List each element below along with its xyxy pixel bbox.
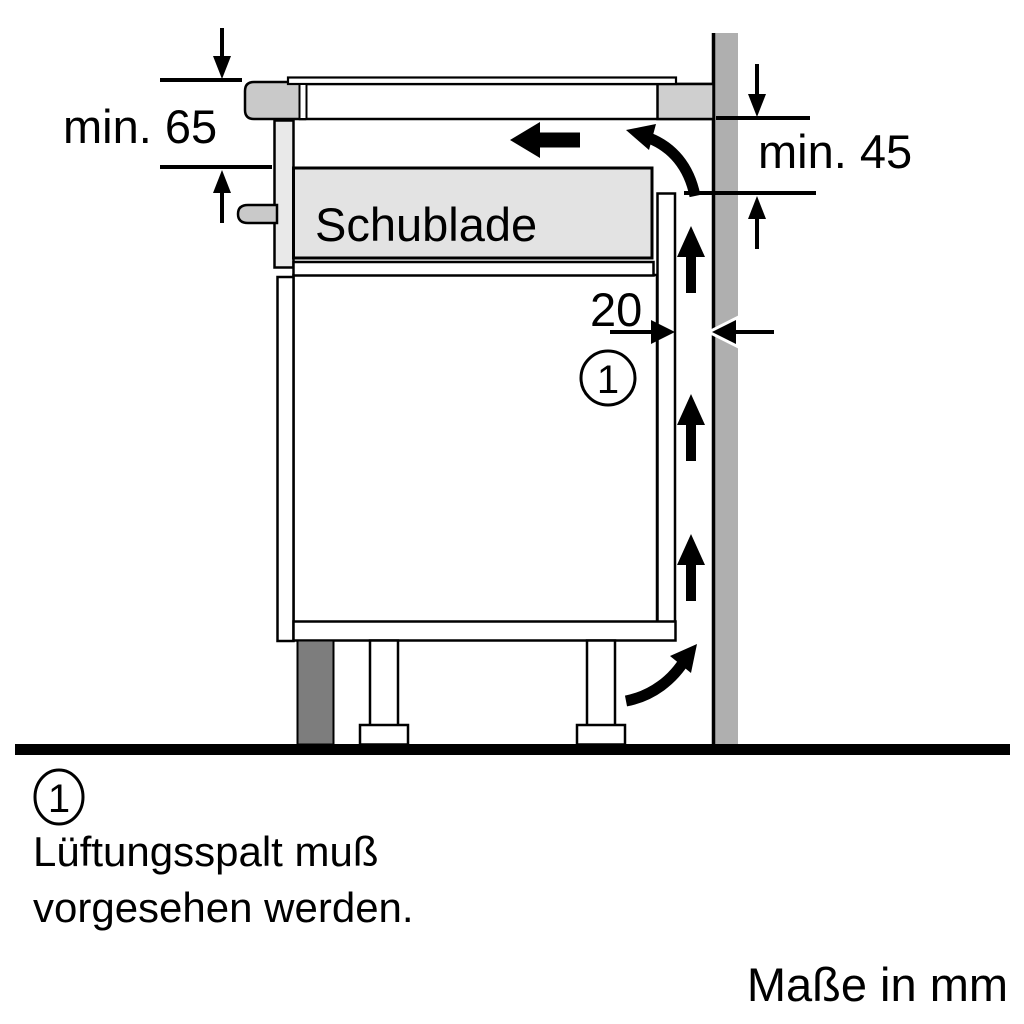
plinth <box>298 641 334 745</box>
cabinet-leg-front <box>360 641 408 745</box>
dimension-arrow-down-icon <box>213 28 231 79</box>
legend: 1 Lüftungsspalt muß vorgesehen werden. <box>33 770 414 931</box>
airflow-up-arrow-icon <box>677 394 705 461</box>
cabinet-rail <box>294 262 654 276</box>
worktop-end-block <box>658 84 714 119</box>
installation-diagram: Schublade min. 65 <box>0 0 1024 1024</box>
units-note: Maße in mm <box>747 958 1008 1011</box>
dimension-arrow-up-icon <box>213 170 231 223</box>
callout-number: 1 <box>597 358 619 402</box>
hob-glass-top <box>288 78 676 85</box>
wall-surface <box>713 33 738 744</box>
leg-foot <box>577 725 625 745</box>
cabinet-bottom-panel <box>294 622 676 641</box>
airflow-curve-bottom-icon <box>626 644 697 701</box>
worktop <box>300 84 714 119</box>
drawer-front-panel <box>275 121 294 268</box>
floor-line <box>15 744 1010 755</box>
drawer-handle <box>238 205 277 223</box>
cabinet-front-stile <box>278 277 294 641</box>
min45-label: min. 45 <box>758 125 912 178</box>
dimension-min65: min. 65 <box>63 28 272 223</box>
drawer-label: Schublade <box>315 198 537 251</box>
wall <box>713 33 738 744</box>
leg-shaft <box>587 641 615 727</box>
airflow-up-arrow-icon <box>677 226 705 293</box>
cabinet-leg-rear <box>577 641 625 745</box>
cabinet-rear-panel <box>658 194 676 623</box>
hob-edge-strip <box>300 84 307 119</box>
diagram-canvas: Schublade min. 65 <box>0 0 1024 1024</box>
airflow-left-arrow-icon <box>510 122 580 158</box>
dimension-arrow-down-icon <box>748 64 766 117</box>
leg-shaft <box>370 641 398 727</box>
min65-label: min. 65 <box>63 100 217 153</box>
dimension-gap20: 20 <box>590 283 774 344</box>
hob-front-trim <box>245 82 305 119</box>
dimension-arrow-up-icon <box>748 196 766 249</box>
leg-foot <box>360 725 408 745</box>
airflow-up-arrow-icon <box>677 534 705 601</box>
legend-text-line2: vorgesehen werden. <box>33 884 414 931</box>
legend-text-line1: Lüftungsspalt muß <box>33 828 379 875</box>
gap20-label: 20 <box>590 283 642 336</box>
legend-callout-number: 1 <box>48 777 70 821</box>
callout-1-marker: 1 <box>581 351 635 405</box>
